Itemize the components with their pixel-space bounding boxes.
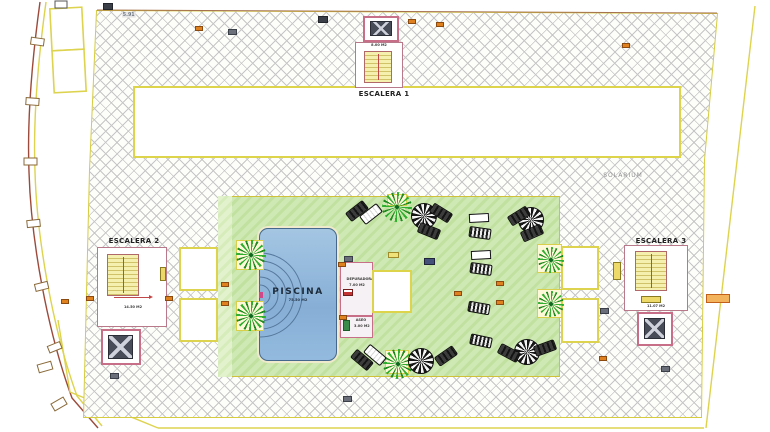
marker-chip: [103, 3, 113, 10]
marker-chip: [195, 26, 203, 31]
marker-chip: [221, 282, 229, 287]
marker-chip: [600, 308, 609, 314]
marker-chip: [110, 373, 119, 379]
marker-chip: [228, 29, 237, 35]
palm-tree-icon: [236, 301, 266, 331]
sun-lounger-icon: [533, 339, 557, 357]
marker-chip: [388, 252, 399, 258]
marker-chip: [343, 396, 352, 402]
sun-lounger-icon: [468, 226, 491, 240]
table-icon: [469, 213, 489, 223]
palm-tree-icon: [538, 291, 564, 317]
palm-tree-icon: [382, 192, 412, 222]
furniture-layer: [0, 0, 770, 432]
marker-chip: [318, 16, 328, 23]
marker-chip: [424, 258, 435, 265]
site-plan: SOLARIUM 5.91 8.00 M2 ESCALERA 1 PISCINA…: [0, 0, 770, 432]
sun-lounger-icon: [467, 301, 491, 316]
sun-lounger-icon: [434, 345, 458, 367]
marker-chip: [338, 262, 346, 267]
palm-tree-icon: [236, 240, 266, 270]
sun-lounger-icon: [469, 262, 492, 276]
marker-chip: [454, 291, 462, 296]
parasol-icon: [408, 348, 434, 374]
marker-chip: [339, 315, 347, 320]
marker-chip: [496, 300, 504, 305]
marker-chip: [344, 256, 353, 262]
marker-chip: [496, 281, 504, 286]
marker-chip: [61, 299, 69, 304]
marker-chip: [165, 296, 173, 301]
marker-chip: [221, 301, 229, 306]
marker-chip: [706, 294, 730, 303]
marker-chip: [86, 296, 94, 301]
palm-tree-icon: [538, 247, 564, 273]
table-icon: [471, 250, 491, 260]
sun-lounger-icon: [469, 333, 493, 348]
marker-chip: [599, 356, 607, 361]
marker-chip: [408, 19, 416, 24]
marker-chip: [661, 366, 670, 372]
sun-lounger-icon: [417, 222, 442, 240]
marker-chip: [436, 22, 444, 27]
marker-chip: [622, 43, 630, 48]
